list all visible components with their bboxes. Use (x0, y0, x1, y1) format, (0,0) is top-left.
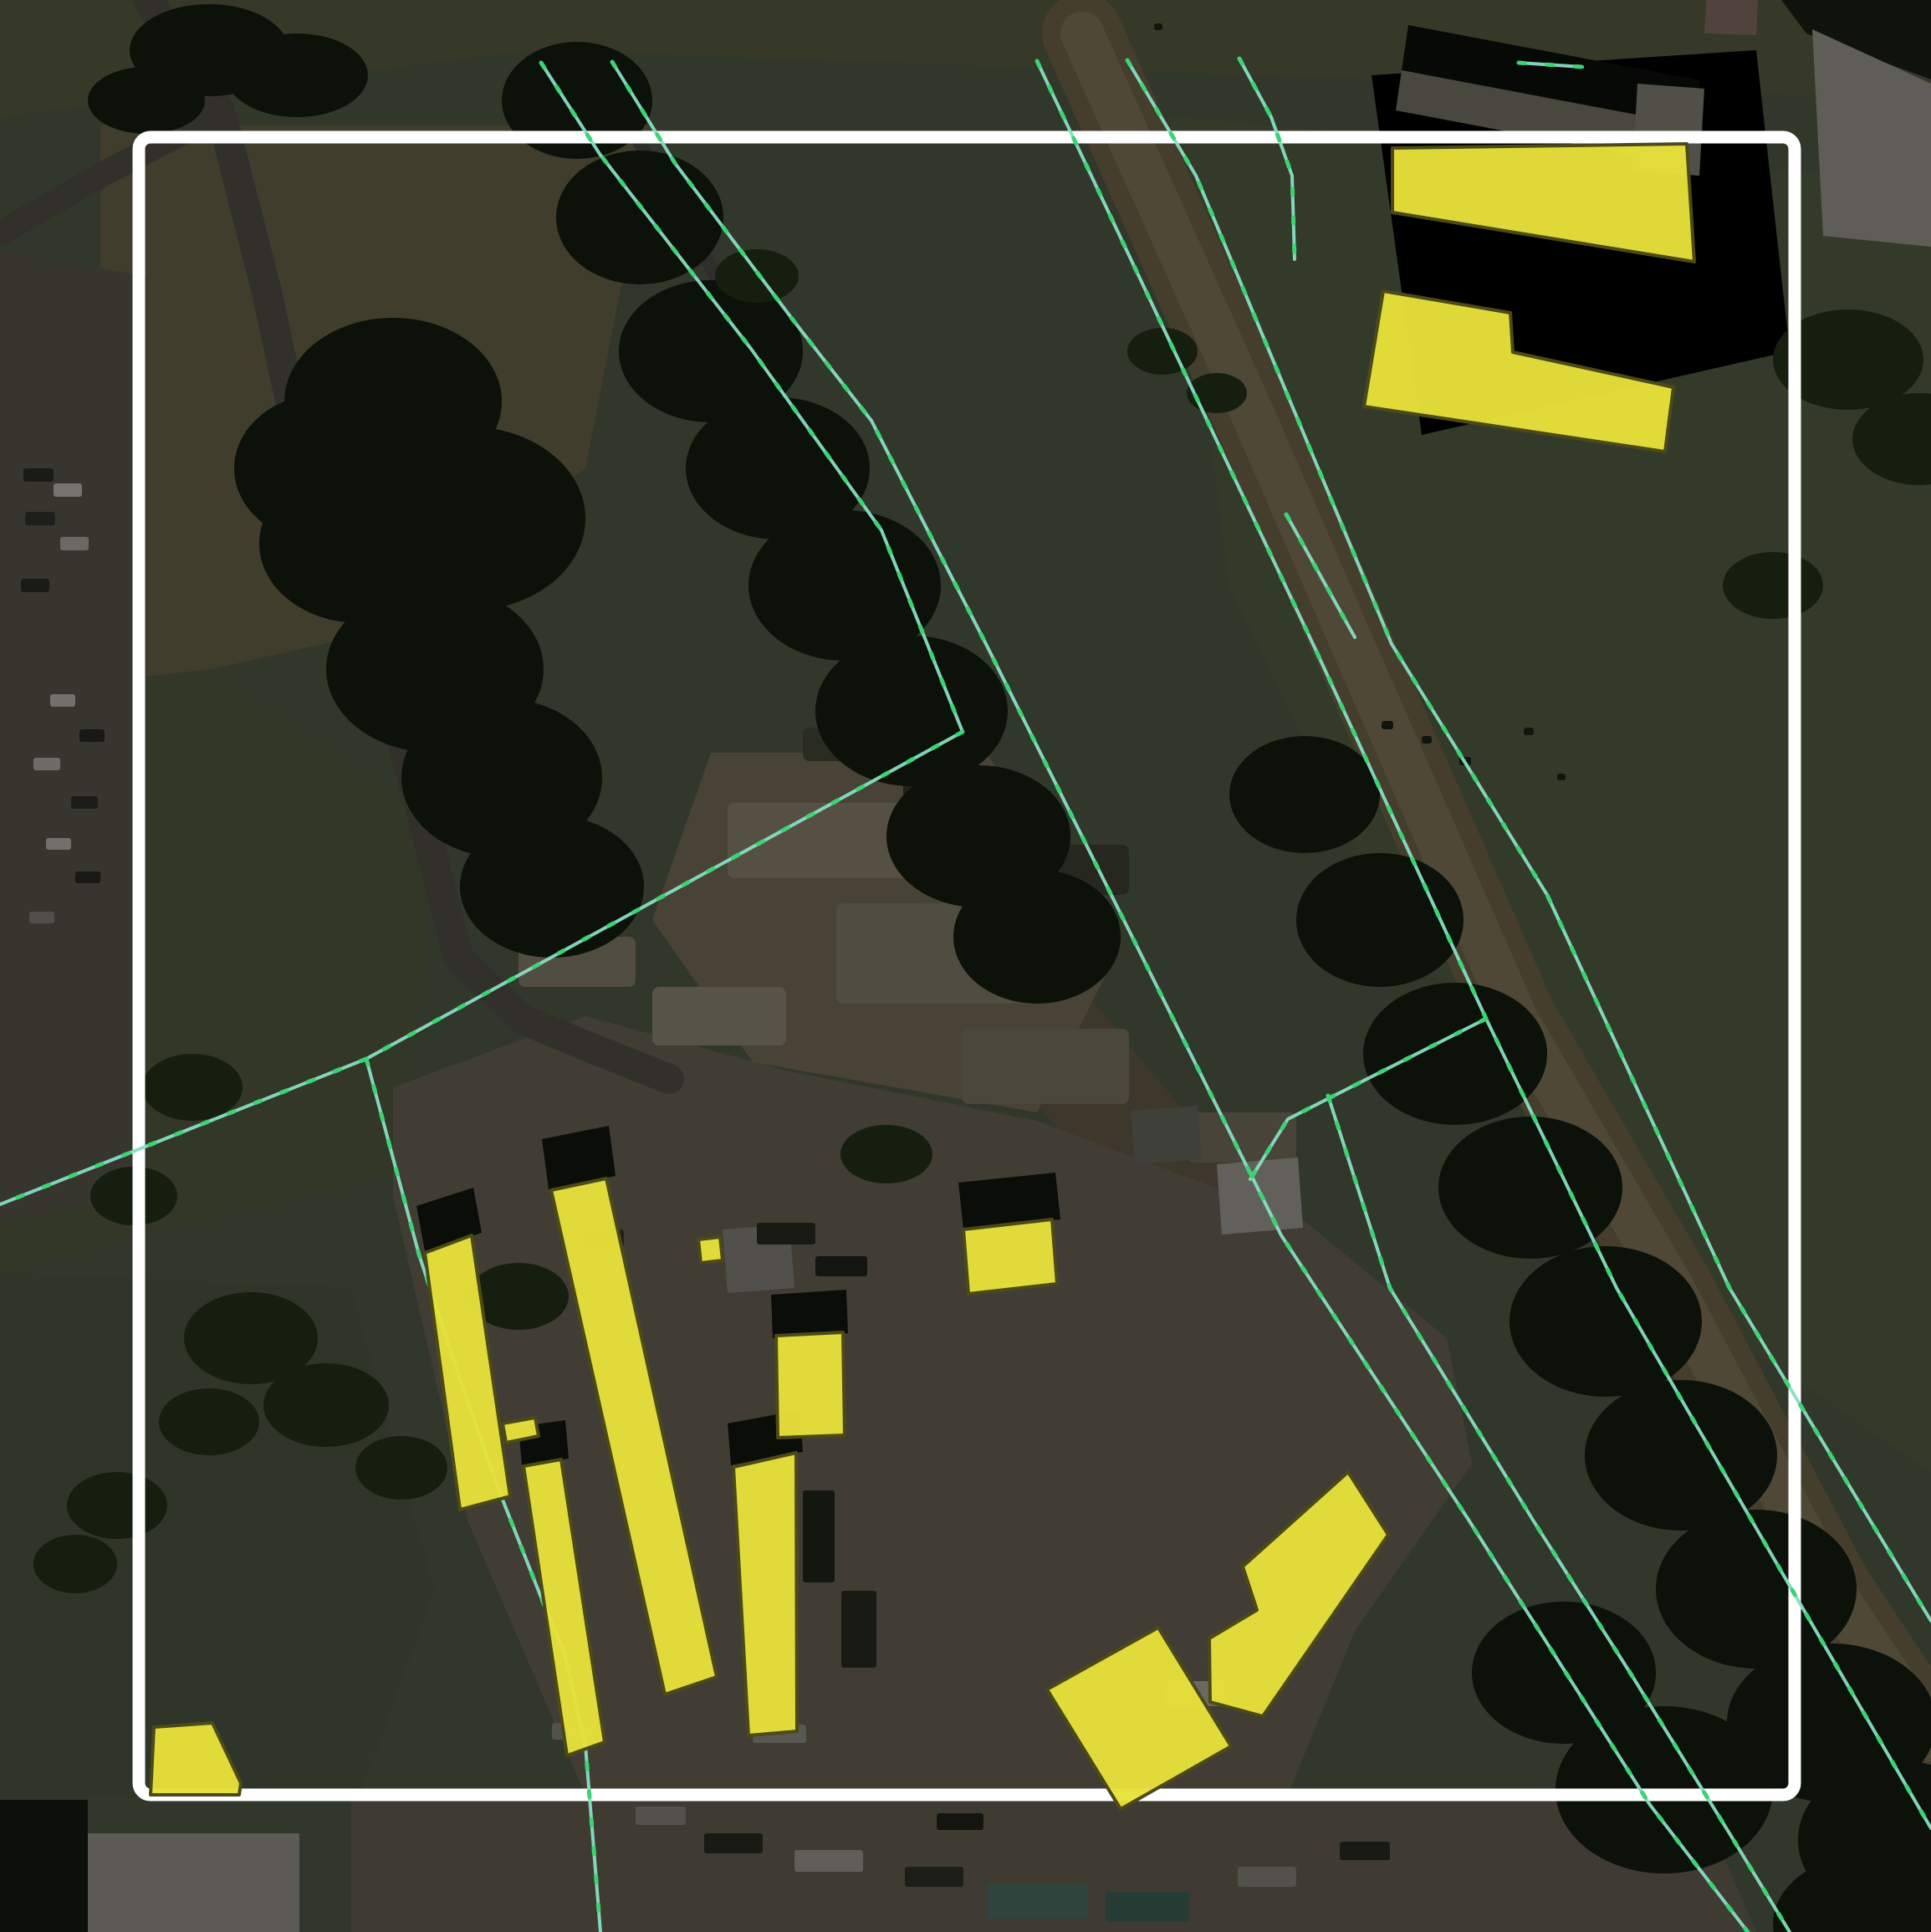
footprint-bldg-tiny-square[interactable] (698, 1237, 723, 1263)
map-canvas[interactable] (0, 0, 1931, 1932)
dim-overlay (0, 0, 1931, 1932)
footprint-bldg-mid-rect-f[interactable] (776, 1332, 845, 1438)
footprint-bldg-center-small[interactable] (963, 1219, 1057, 1294)
satellite-annotation-viewport[interactable] (0, 0, 1931, 1932)
